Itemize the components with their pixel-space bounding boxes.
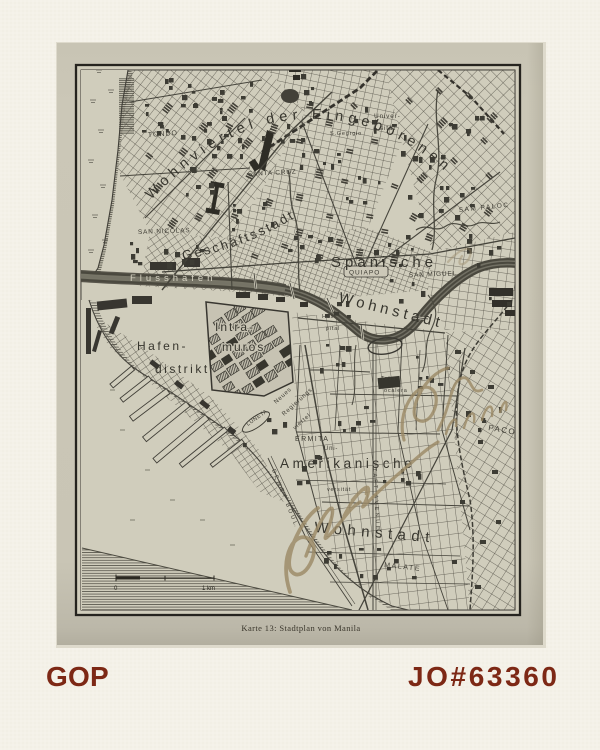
svg-text:1 km: 1 km	[202, 586, 215, 592]
svg-text:Karte 13: Stadtplan von Manila: Karte 13: Stadtplan von Manila	[241, 623, 360, 633]
